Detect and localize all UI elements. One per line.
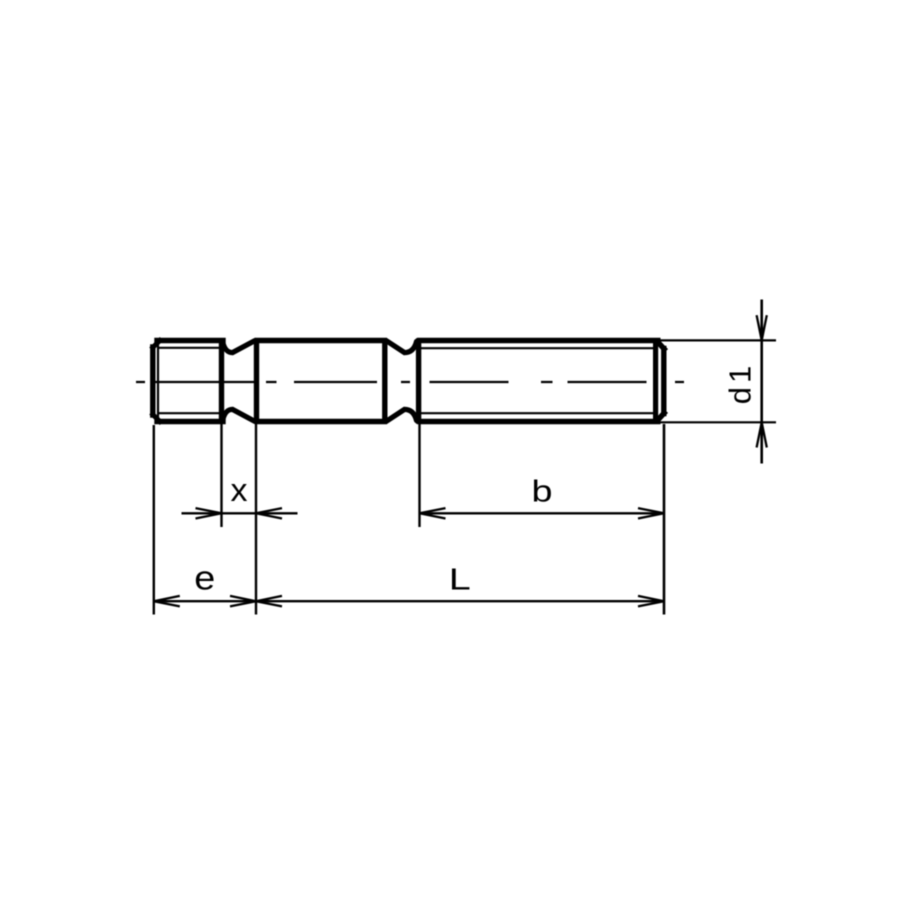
svg-text:b: b [532, 474, 553, 509]
svg-text:e: e [194, 559, 215, 597]
svg-text:d1: d1 [723, 362, 758, 404]
svg-text:L: L [449, 561, 471, 596]
svg-text:x: x [231, 472, 248, 508]
